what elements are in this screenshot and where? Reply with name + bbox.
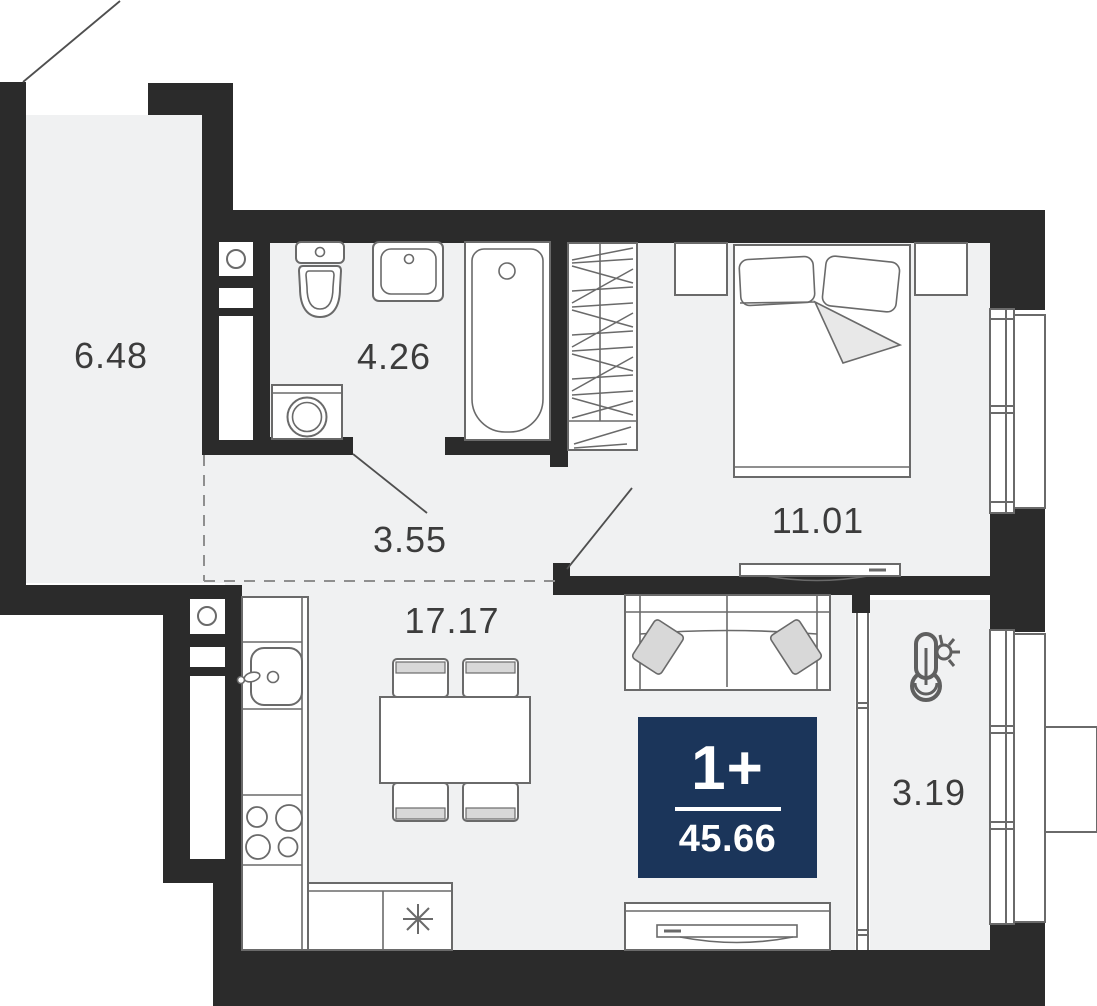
room-area-label-hallway: 6.48 xyxy=(74,335,148,377)
double-bed-icon xyxy=(734,245,910,477)
wall-entry-vertical xyxy=(202,83,233,213)
duct-kitchen xyxy=(190,676,225,859)
room-area-label-balcony: 3.19 xyxy=(892,772,966,814)
duct-gap-bathroom xyxy=(219,288,253,308)
unit-rooms-count: 1+ xyxy=(691,738,764,800)
nightstand-icon xyxy=(915,243,967,295)
duct-bathroom xyxy=(219,316,253,440)
wardrobe-icon xyxy=(568,243,637,450)
neighbor-balcony-outline xyxy=(1045,727,1097,832)
balcony-partition xyxy=(855,613,870,950)
toilet-icon xyxy=(296,242,344,317)
room-area-label-bathroom: 4.26 xyxy=(357,336,431,378)
room-area-label-bedroom: 11.01 xyxy=(772,500,864,542)
room-area-label-kitchen-living: 17.17 xyxy=(404,600,499,642)
duct-gap-kitchen xyxy=(190,647,225,667)
badge-divider xyxy=(675,807,781,811)
bedroom-doorway-floor xyxy=(550,455,570,565)
dining-table-icon xyxy=(380,697,530,783)
bottom-counter xyxy=(308,883,452,950)
wall-right-middle xyxy=(990,509,1045,632)
bathroom-sink-icon xyxy=(373,242,443,301)
bedroom-window-sill xyxy=(1013,315,1045,508)
wall-top-outer xyxy=(233,210,1045,243)
wall-bathroom-bedroom xyxy=(550,210,568,467)
balcony-window-sill xyxy=(1013,634,1045,922)
ventilation-shaft-icon xyxy=(190,599,225,634)
ventilation-shaft-icon xyxy=(219,242,253,276)
sofa-icon xyxy=(625,595,830,690)
floor-plan-canvas: 6.48 4.26 3.55 17.17 11.01 3.19 1+ 45.66 xyxy=(0,0,1097,1006)
bathtub-icon xyxy=(465,242,550,440)
wall-bottom-outer xyxy=(213,950,1045,1006)
balcony-window-icon xyxy=(990,630,1014,924)
unit-total-area: 45.66 xyxy=(679,820,777,858)
bedroom-window-icon xyxy=(990,309,1014,513)
wall-bedroom-living xyxy=(555,576,997,595)
nightstand-icon xyxy=(675,243,727,295)
wall-right-top xyxy=(990,242,1045,310)
entry-door-swing-icon xyxy=(23,1,120,82)
room-area-label-corridor: 3.55 xyxy=(373,519,447,561)
tv-console-icon xyxy=(625,903,830,950)
floor-plan-drawing xyxy=(0,0,1097,1006)
unit-info-badge: 1+ 45.66 xyxy=(638,717,817,878)
wall-lower-left-step xyxy=(213,883,242,950)
washing-machine-icon xyxy=(272,385,342,439)
hob-asterisk-icon xyxy=(403,904,433,934)
wall-left-outer xyxy=(0,82,26,615)
wall-partition-stub xyxy=(852,576,870,613)
